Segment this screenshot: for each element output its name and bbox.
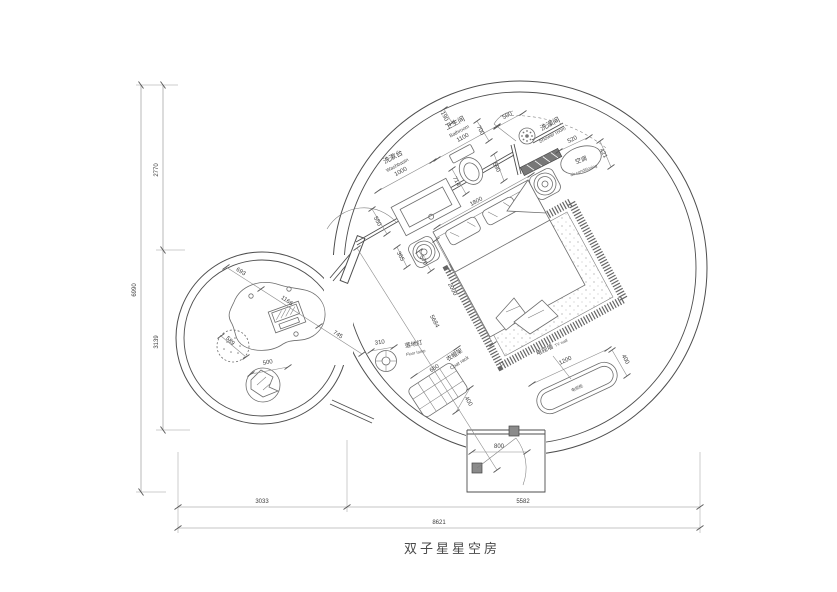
dim-overall-width: 8621 (432, 520, 446, 526)
shower-head-icon (519, 128, 535, 144)
dim-entry-door: 800 (494, 444, 505, 450)
lounge-circle-walls (176, 252, 348, 424)
bottom-dimensions: 3033 5582 8621 (175, 440, 704, 533)
dim-lower-height: 3139 (154, 335, 160, 349)
entry-opening (466, 428, 546, 458)
dim-overall-height: 6990 (132, 283, 138, 297)
door-frame-post (509, 426, 519, 436)
floorplan-drawing: 空调 air conditioning (0, 0, 837, 592)
dim-bedroom-width: 5582 (516, 499, 530, 505)
dim-lounge-width: 3033 (255, 499, 269, 505)
floorplan-canvas: 空调 air conditioning (0, 0, 837, 592)
drawing-title: 双子星星空房 (404, 541, 500, 556)
dim-upper-height: 2770 (154, 163, 160, 177)
left-dimensions: 2770 3139 6990 (132, 82, 190, 496)
